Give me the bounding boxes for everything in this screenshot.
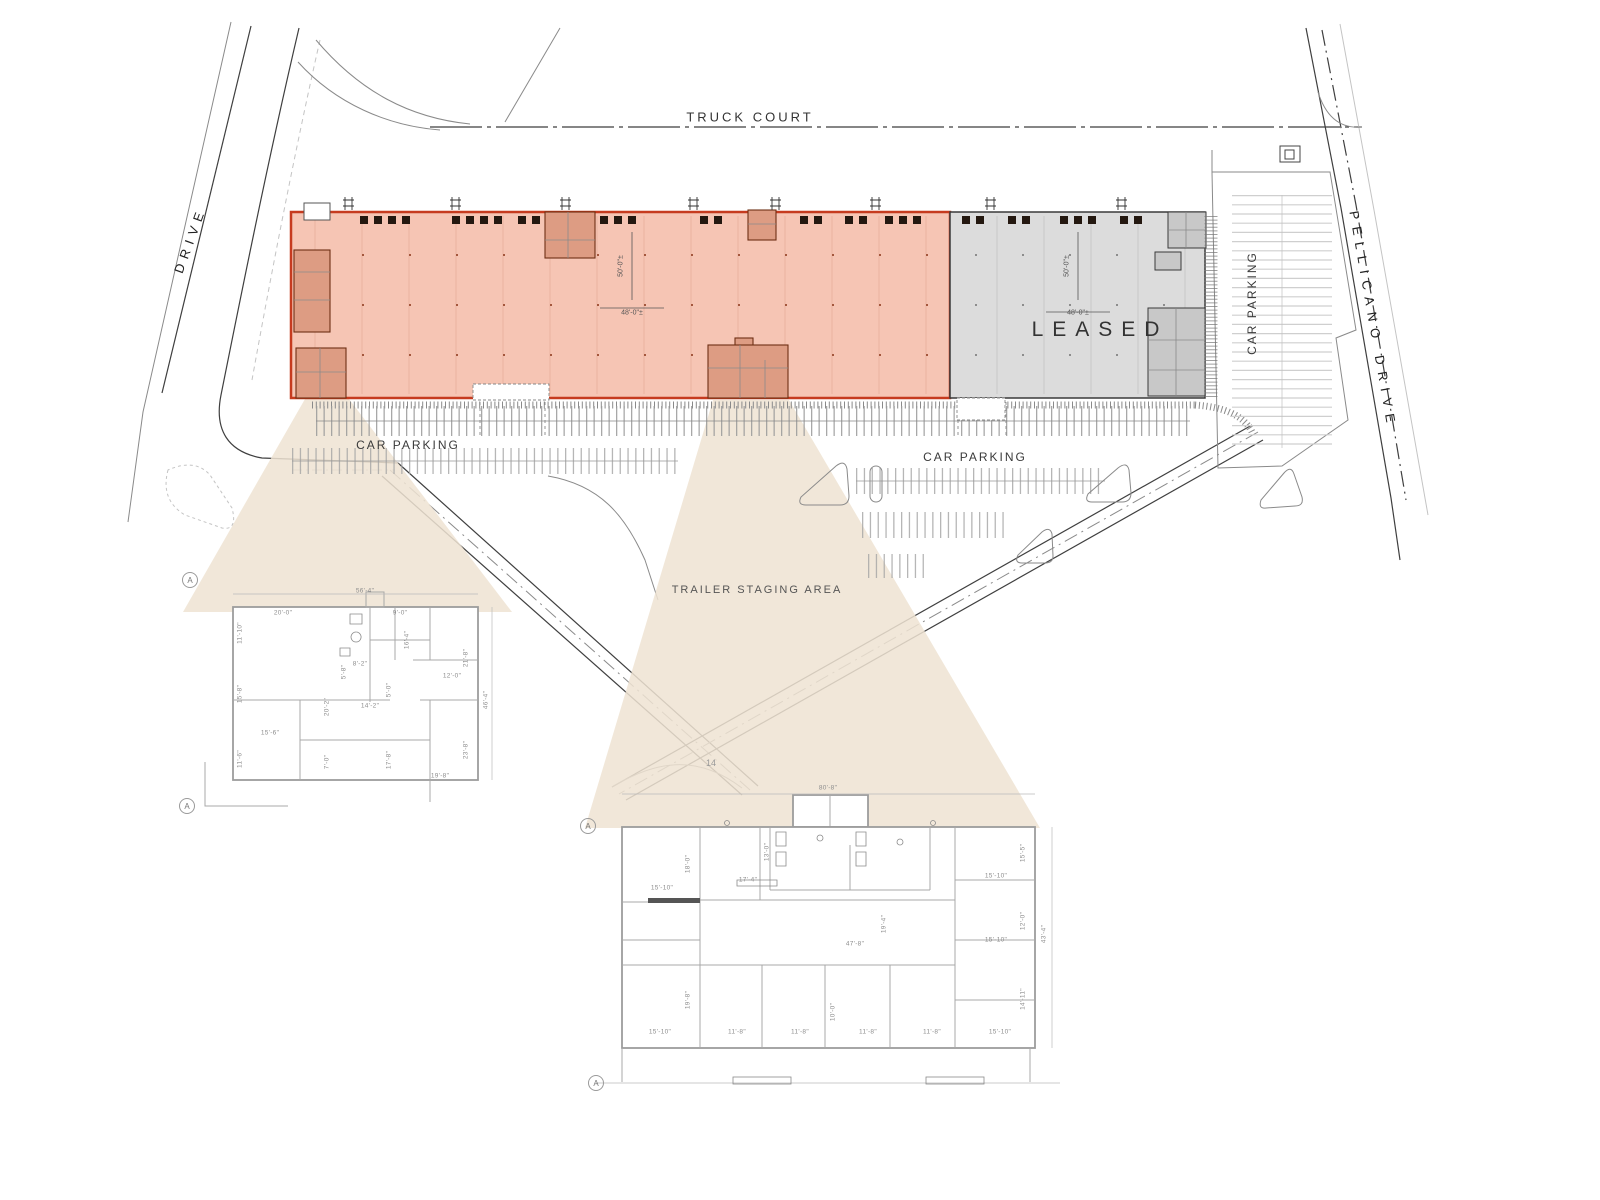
dim-label: 15'-5": [1020, 844, 1027, 862]
dim-label: 47'-8": [846, 941, 864, 948]
building-available: [291, 203, 950, 400]
dim-label: 5'-8": [341, 665, 348, 679]
dim-label: 9'-0": [393, 610, 407, 617]
section-marker: A: [182, 572, 198, 588]
dim-label: 11'-8": [859, 1029, 877, 1036]
dim-label: 56'-4": [356, 588, 374, 595]
dim-label: 20'-2": [324, 698, 331, 716]
car-parking-label-2: CAR PARKING: [923, 450, 1027, 464]
car-parking-label-1: CAR PARKING: [356, 438, 460, 452]
dim-label: 23'-8": [463, 741, 470, 759]
dim-label: 11'-8": [791, 1029, 809, 1036]
dim-label: 43'-4": [1041, 925, 1048, 943]
leased-dim-vertical: 50'-0"±: [1064, 255, 1071, 277]
dim-label: 80'-8": [819, 785, 837, 792]
dim-label: 11'-10": [237, 622, 244, 644]
dim-label: 15'-8": [237, 685, 244, 703]
road-number-label: 14: [706, 758, 716, 768]
dim-label: 10'-0": [830, 1003, 837, 1021]
trailer-staging-label: TRAILER STAGING AREA: [672, 584, 843, 596]
truck-court-label: TRUCK COURT: [686, 110, 813, 125]
car-parking-front-row: [312, 402, 1252, 438]
dim-label: 19'-4": [881, 915, 888, 933]
dim-label: 15'-10": [985, 937, 1007, 944]
dim-label: 19'-8": [685, 991, 692, 1009]
site-plan-page: TRUCK COURT DRIVE PELLICANO DRIVE CAR PA…: [0, 0, 1600, 1200]
dim-label: 11'-6": [237, 750, 244, 768]
dim-label: 13'-0": [764, 843, 771, 861]
car-parking-label-3: CAR PARKING: [1245, 251, 1259, 355]
section-marker: A: [580, 818, 596, 834]
left-callout-cone: [183, 399, 512, 612]
dim-label: 14'-2": [361, 703, 379, 710]
car-parking-east-lot: [1212, 146, 1356, 508]
dim-label: 18'-0": [685, 855, 692, 873]
dim-label: 15'-10": [649, 1029, 671, 1036]
available-dim-vertical: 50'-0"±: [618, 255, 625, 277]
dim-label: 21'-8": [463, 649, 470, 667]
dim-label: 8'-2": [353, 661, 367, 668]
dim-label: 15'-10": [651, 885, 673, 892]
dim-label: 11'-8": [923, 1029, 941, 1036]
dim-label: 12'-0": [1020, 912, 1027, 930]
right-callout-cone: [585, 400, 1040, 828]
dim-label: 15'-10": [985, 873, 1007, 880]
dim-label: 11'-8": [728, 1029, 746, 1036]
leased-dim-horizontal: 48'-0"±: [1067, 310, 1089, 317]
dim-label: 20'-0": [274, 610, 292, 617]
dim-label: 14'-11": [1020, 988, 1027, 1010]
dim-label: 17'-8": [386, 751, 393, 769]
dim-label: 7'-0": [324, 755, 331, 769]
dim-label: 17'-4": [739, 877, 757, 884]
dim-label: 12'-0": [443, 673, 461, 680]
roof-access-symbols: [343, 197, 1127, 210]
dim-label: 46'-4": [483, 691, 490, 709]
section-marker: A: [179, 798, 195, 814]
section-marker: A: [588, 1075, 604, 1091]
available-dim-horizontal: 48'-0"±: [621, 310, 643, 317]
leased-label: LEASED: [1032, 318, 1169, 342]
site-plan-svg: [0, 0, 1600, 1200]
dim-label: 5'-0": [386, 683, 393, 697]
dim-label: 19'-8": [431, 773, 449, 780]
dim-label: 15'-10": [989, 1029, 1011, 1036]
dim-label: 16'-4": [404, 631, 411, 649]
dim-label: 15'-6": [261, 730, 279, 737]
